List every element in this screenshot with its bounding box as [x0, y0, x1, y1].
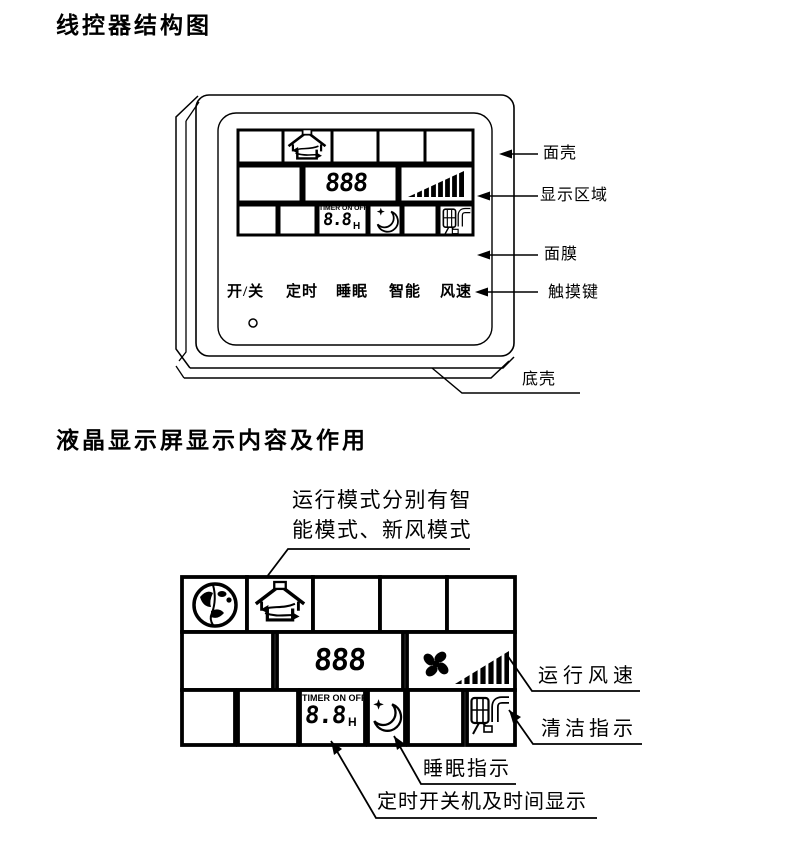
manual-page: 线控器结构图 面壳 显示区域 面膜 触摸键 底壳 开/关 定时 睡眠 智能 风速… — [0, 0, 790, 868]
callout-display-area: 显示区域 — [540, 187, 608, 205]
button-sleep[interactable]: 睡眠 — [336, 284, 368, 301]
timer-unit: H — [353, 221, 360, 233]
callout-timer-display: 定时开关机及时间显示 — [377, 791, 587, 814]
timer-unit: H — [348, 716, 357, 730]
section2-title: 液晶显示屏显示内容及作用 — [56, 427, 368, 453]
callout-sleep: 睡眠指示 — [423, 758, 511, 781]
controller-structure-drawing — [176, 95, 580, 393]
callout-face-film: 面膜 — [544, 246, 578, 264]
timer-digits: 8.8 — [304, 702, 347, 730]
button-smart[interactable]: 智能 — [389, 284, 421, 301]
fan-icon — [424, 652, 449, 677]
button-timer[interactable]: 定时 — [286, 284, 318, 301]
callout-front-shell: 面壳 — [543, 145, 577, 163]
callout-clean: 清洁指示 — [541, 718, 637, 741]
section1-title: 线控器结构图 — [56, 12, 212, 38]
power-led-dot — [249, 319, 257, 327]
seven-seg-display: 888 — [312, 644, 366, 679]
callout-touch-keys: 触摸键 — [548, 284, 599, 302]
button-power[interactable]: 开/关 — [227, 284, 264, 301]
mode-note-line1: 运行模式分别有智 — [292, 488, 472, 512]
callout-bottom-shell: 底壳 — [522, 371, 556, 389]
mode-note-line2: 能模式、新风模式 — [292, 518, 472, 542]
seven-seg-display: 888 — [324, 169, 369, 198]
button-fan-speed[interactable]: 风速 — [440, 284, 472, 301]
callout-fan-speed: 运行风速 — [538, 665, 638, 688]
timer-digits: 8.8 — [322, 211, 351, 231]
